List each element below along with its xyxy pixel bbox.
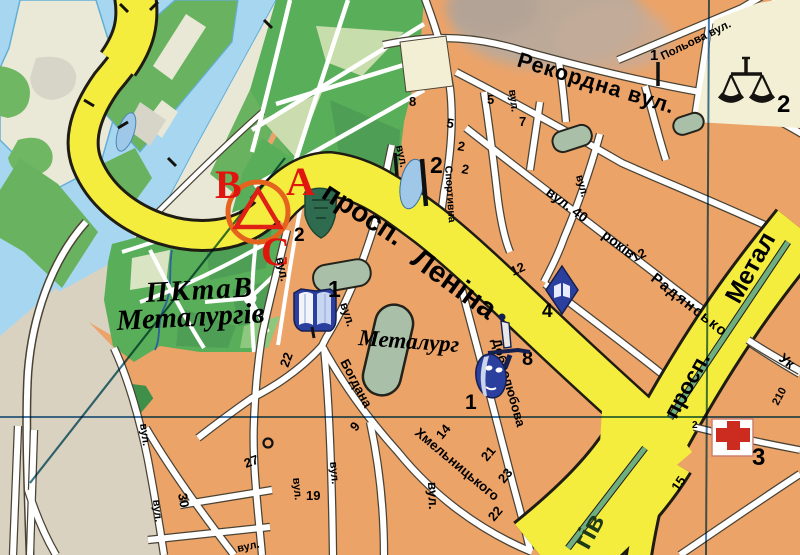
svg-text:1: 1 <box>465 391 477 414</box>
svg-text:19: 19 <box>306 488 320 503</box>
svg-text:вул.: вул. <box>425 482 441 510</box>
svg-text:вул.: вул. <box>150 499 164 523</box>
svg-text:вул.: вул. <box>290 477 304 500</box>
svg-text:5: 5 <box>487 92 494 107</box>
svg-text:2: 2 <box>692 420 698 431</box>
svg-text:2: 2 <box>294 225 305 246</box>
svg-text:2: 2 <box>430 152 443 178</box>
svg-text:1: 1 <box>328 276 341 302</box>
svg-text:8: 8 <box>409 94 416 109</box>
svg-text:1: 1 <box>650 47 658 64</box>
svg-text:В: В <box>215 162 242 207</box>
svg-text:7: 7 <box>519 114 526 129</box>
svg-text:2: 2 <box>777 91 790 118</box>
svg-text:А: А <box>286 159 315 204</box>
svg-text:30: 30 <box>175 492 192 509</box>
svg-text:4: 4 <box>542 301 553 322</box>
svg-text:вул.: вул. <box>327 461 341 484</box>
svg-text:3: 3 <box>752 444 765 471</box>
